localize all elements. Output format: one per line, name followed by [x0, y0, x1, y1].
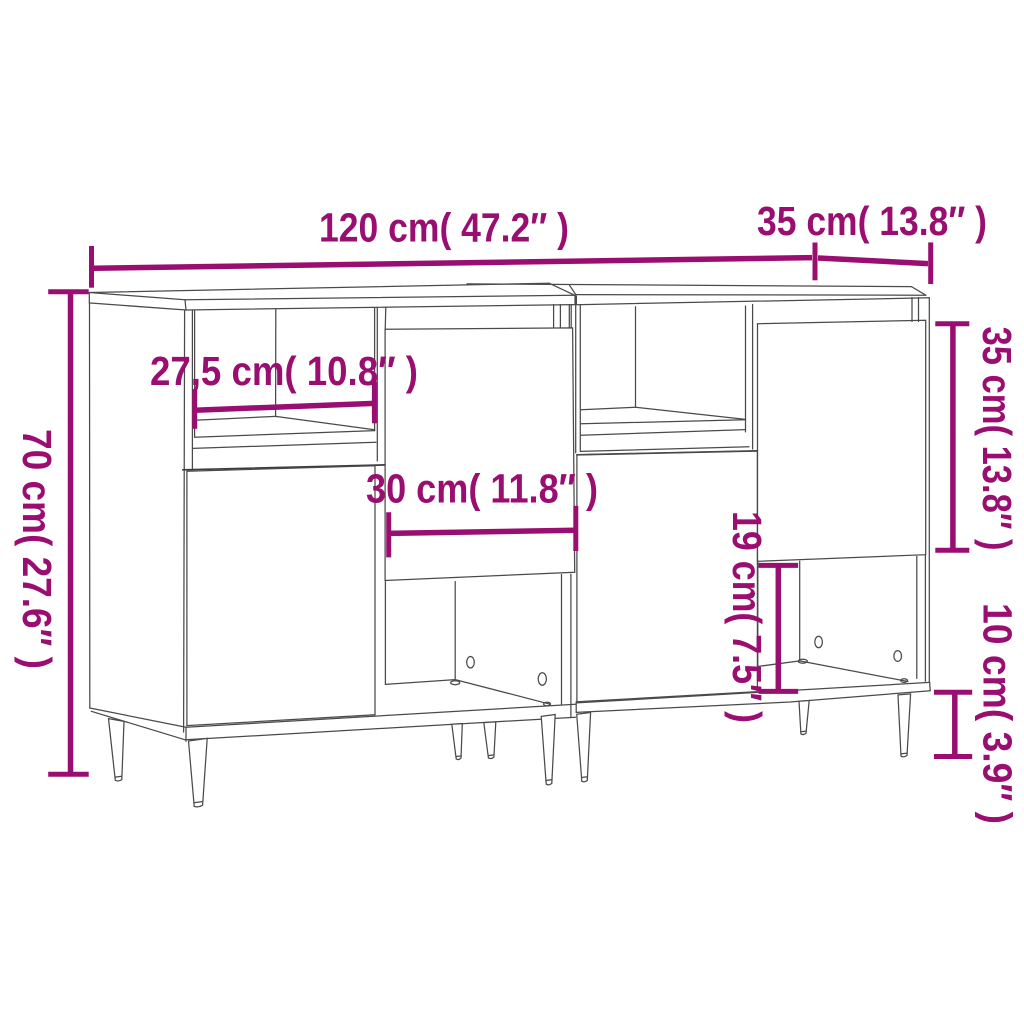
- svg-text:70 cm( 27.6″ ): 70 cm( 27.6″ ): [14, 429, 60, 669]
- svg-text:35 cm( 13.8″ ): 35 cm( 13.8″ ): [757, 198, 987, 244]
- svg-text:35 cm( 13.8″ ): 35 cm( 13.8″ ): [974, 327, 1020, 551]
- svg-text:10 cm( 3.9″ ): 10 cm( 3.9″ ): [975, 603, 1021, 824]
- svg-text:19 cm( 7.5″ ): 19 cm( 7.5″ ): [724, 511, 770, 723]
- svg-text:27,5 cm( 10.8″ ): 27,5 cm( 10.8″ ): [150, 348, 418, 394]
- svg-text:30 cm( 11.8″ ): 30 cm( 11.8″ ): [366, 466, 598, 512]
- svg-text:120 cm( 47.2″ ): 120 cm( 47.2″ ): [319, 205, 569, 251]
